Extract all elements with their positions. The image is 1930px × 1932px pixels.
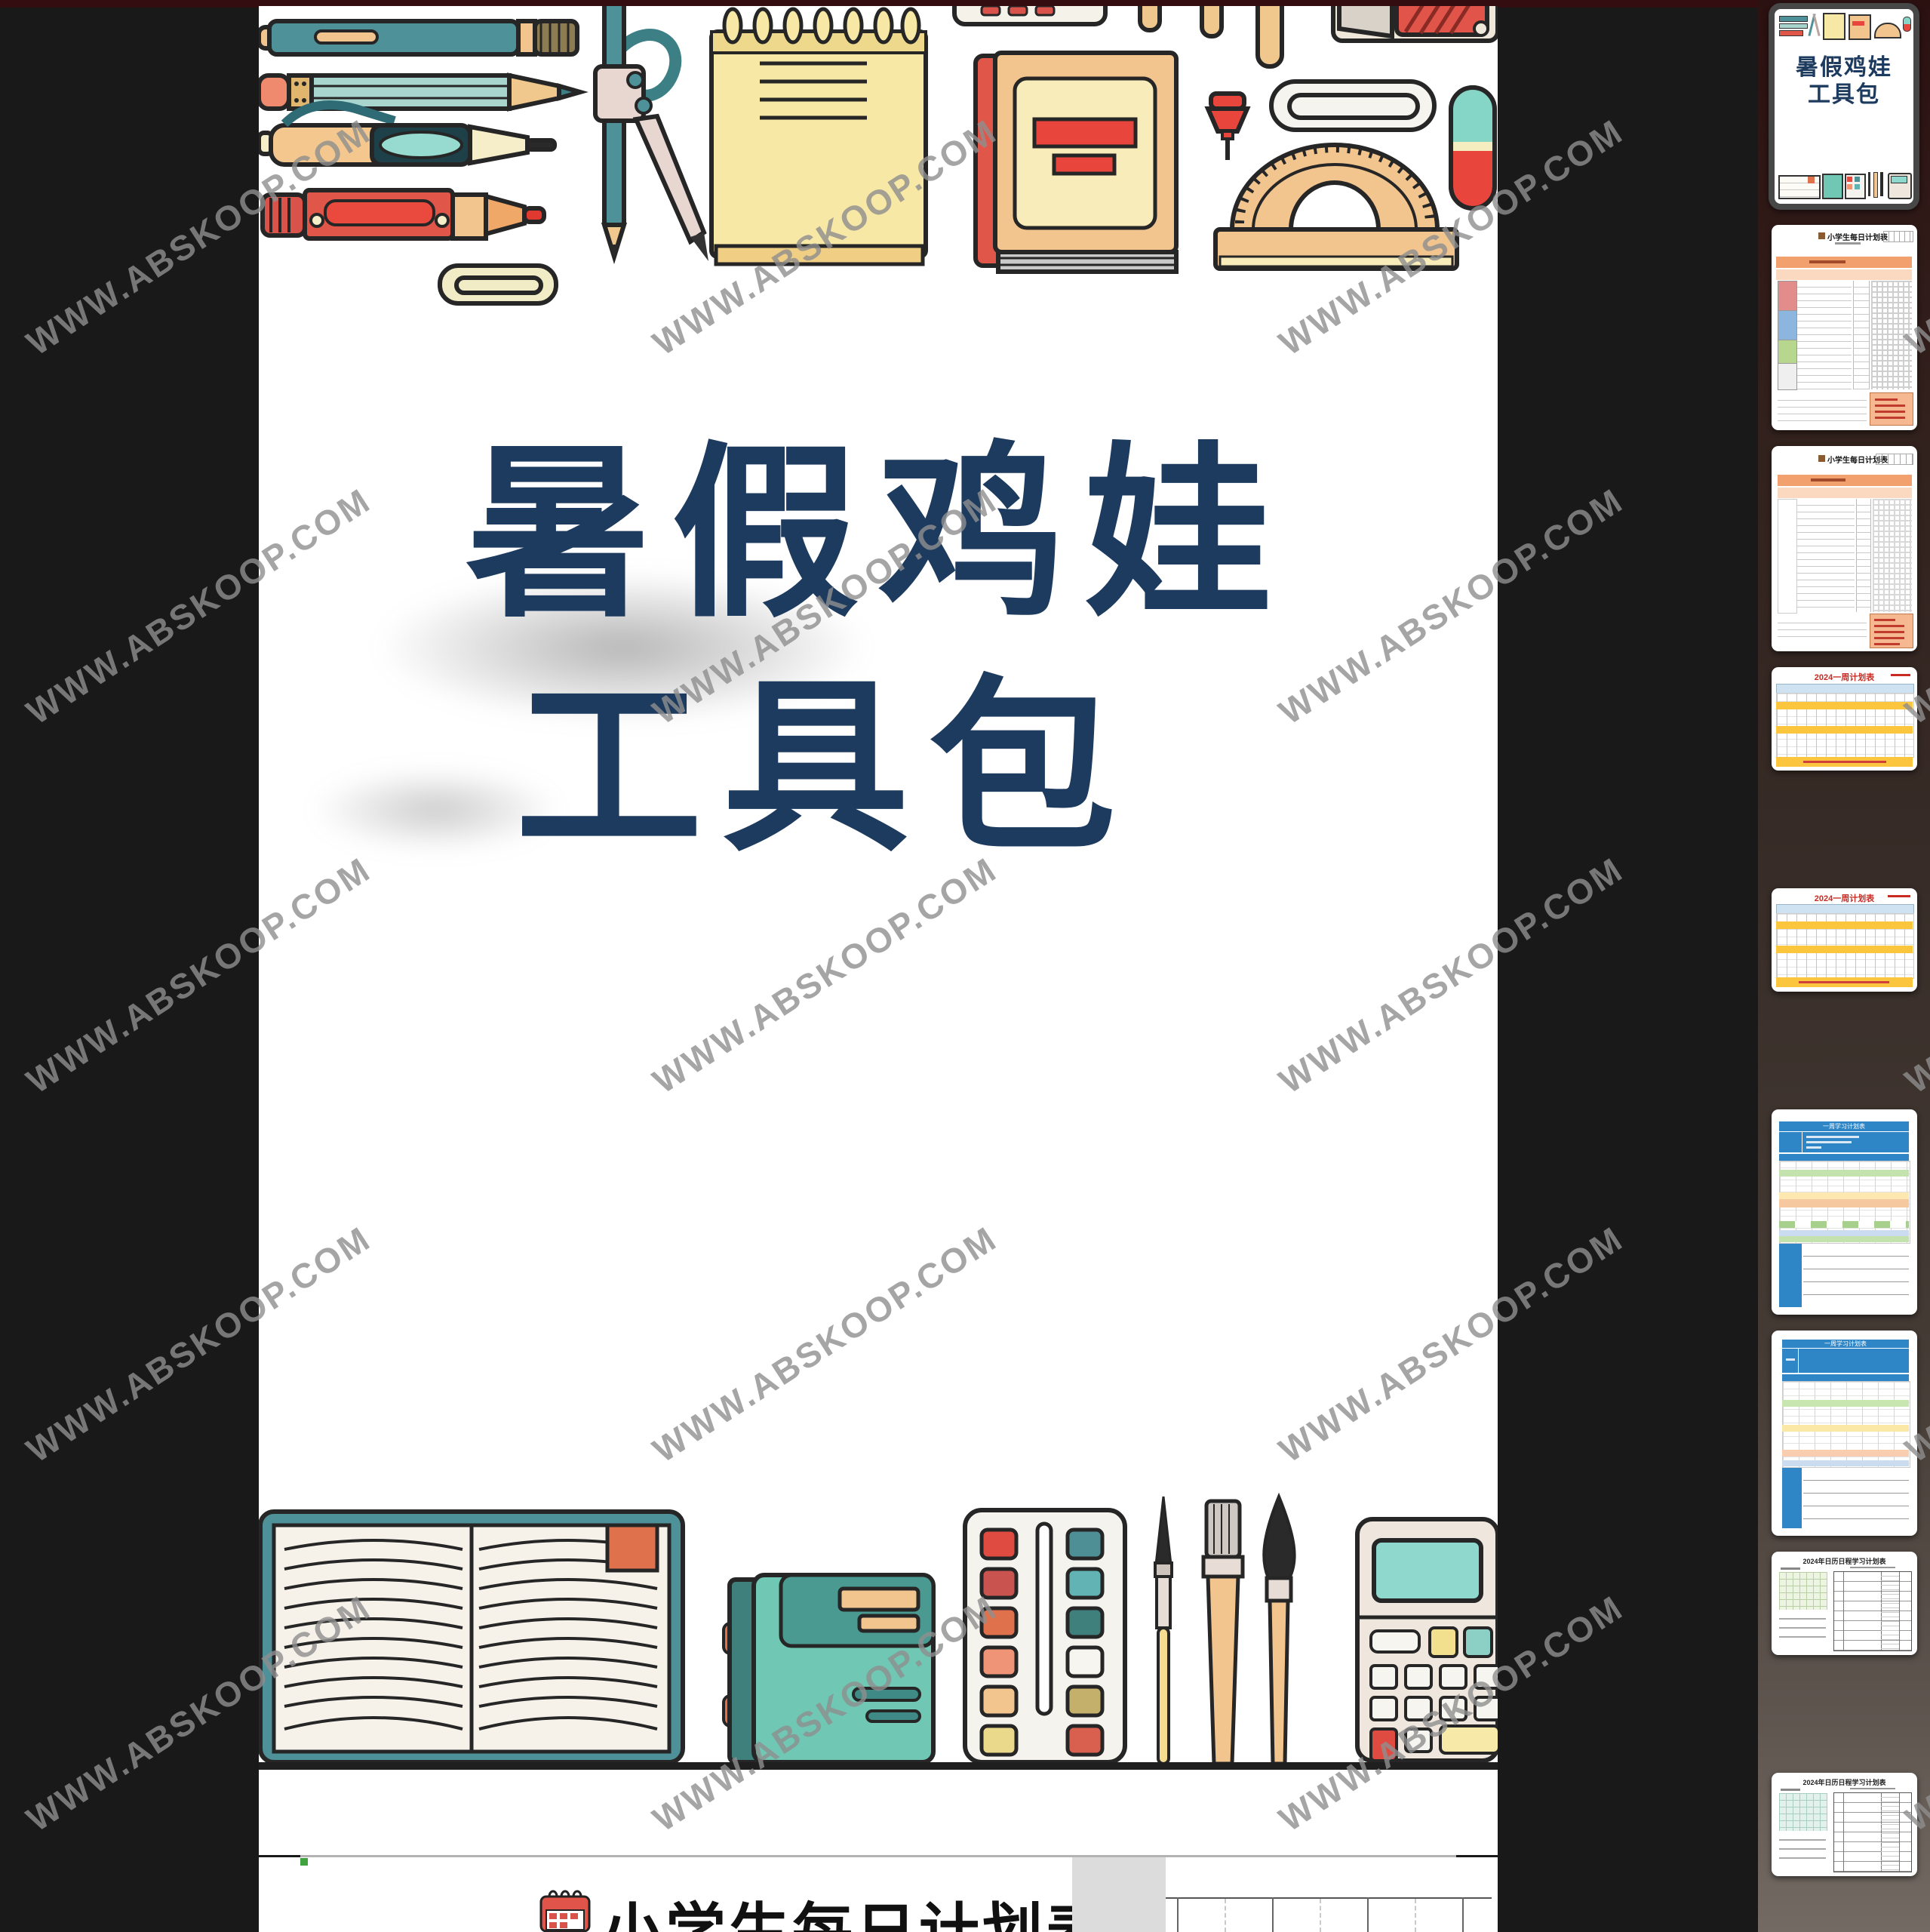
drawing-compass-icon [595,6,708,261]
watercolor-palette-icon [965,1510,1125,1762]
capsule-eraser-icon [1451,88,1495,208]
paint-brushes-icon [1155,1497,1295,1764]
document-page-2: 小学生每日计划表 [259,1857,1498,1932]
page2-gray-band [1072,1857,1166,1932]
page2-title: 小学生每日计划表 [602,1883,1109,1932]
mini-cover-bottom-band [1775,168,1913,204]
red-book-icon [976,53,1176,272]
thumb2-orange-box [1870,392,1913,426]
thumb6-title-bar: 一周学习计划表 [1779,1121,1909,1131]
cover-title-line1: 暑假鸡娃 [259,440,1498,627]
thumb9-table [1833,1792,1912,1872]
spiral-notepad-icon [711,9,926,264]
paperclip-icon [440,266,556,303]
page-thumbnail-1[interactable]: 暑假鸡娃 工具包 [1769,3,1919,210]
stationery-top-band [259,6,1498,315]
illustration-baseline [259,1762,1498,1770]
thumb7-title-bar: 一周学习计划表 [1782,1340,1909,1348]
page-thumbnail-5[interactable]: 2024一周计划表 [1772,888,1917,992]
mini-cover-title-line2: 工具包 [1775,75,1913,109]
thumb8-title: 2024年日历日程学习计划表 [1772,1556,1917,1566]
stationery-bottom-band [259,1491,1498,1776]
page-thumbnail-2[interactable]: 小学生每日计划表 [1772,225,1917,430]
ballpoint-pen-icon [259,105,555,165]
teal-notebook-icon [724,1575,933,1762]
eraser-icon [954,6,1105,24]
thumb9-title: 2024年日历日程学习计划表 [1772,1777,1917,1787]
thumb4-title: 2024一周计划表 [1772,671,1917,683]
thumb3-orange-box [1870,614,1913,648]
calendar-icon [539,1887,592,1932]
page-thumbnail-8[interactable]: 2024年日历日程学习计划表 [1772,1552,1917,1655]
open-book-icon [260,1512,683,1762]
calculator-icon [1357,1519,1498,1761]
page-thumbnail-4[interactable]: 2024一周计划表 [1772,667,1917,771]
thumb9-mini-calendar [1779,1793,1827,1831]
thumb5-title: 2024一周计划表 [1772,892,1917,904]
page-thumbnail-7[interactable]: 一周学习计划表 [1772,1331,1917,1536]
thumbnail-sidebar[interactable]: 暑假鸡娃 工具包 小学生每日计划表 [1758,0,1930,1932]
teal-pen-icon [259,21,577,54]
pushpin-icon [1208,94,1247,160]
protractor-icon [1215,145,1457,269]
pencil-icon [259,75,580,109]
page-thumbnail-9[interactable]: 2024年日历日程学习计划表 [1772,1773,1917,1876]
thumb2-title: 小学生每日计划表 [1827,231,1888,242]
page2-table-grid [1166,1857,1498,1932]
pencil-sharpener-icon [1333,6,1498,41]
date-box-grid [1883,231,1913,242]
document-page-cover: 暑假鸡娃 工具包 [259,6,1498,1855]
thumb8-table [1833,1571,1912,1651]
red-marker-icon [263,190,544,238]
viewer-canvas: 暑假鸡娃 工具包 [0,0,1930,1932]
excel-green-corner [300,1858,308,1866]
cover-title-line2: 工具包 [259,674,1445,861]
thumb8-mini-calendar [1779,1572,1827,1610]
mini-cover-top-band [1775,9,1913,42]
large-paperclip-icon [1271,82,1434,130]
page-thumbnail-3[interactable]: 小学生每日计划表 [1772,446,1917,651]
page-thumbnail-6[interactable]: 一周学习计划表 [1772,1109,1917,1315]
